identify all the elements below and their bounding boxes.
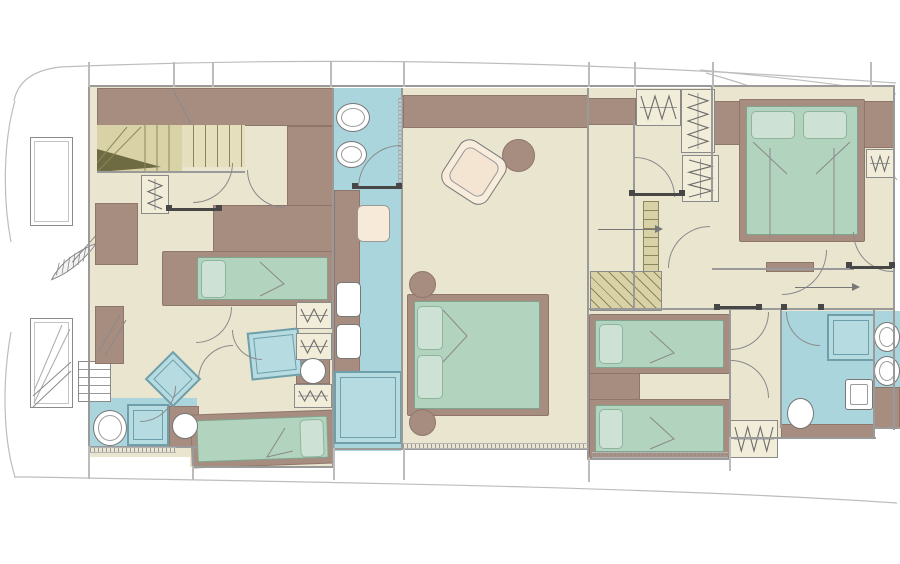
door-leaf [633, 193, 683, 196]
hull-bow-upper [5, 101, 15, 242]
forward-lower-bed-pillow-1 [299, 419, 324, 458]
master-bath-seat [357, 205, 390, 242]
wall-vertical [88, 85, 90, 448]
aft-staircase [590, 271, 662, 311]
master-bidet [336, 324, 361, 359]
starboard-bath-counter [873, 387, 900, 429]
wall-vertical [192, 446, 194, 468]
stair-direction-arrow [598, 225, 666, 234]
hull-frame-stub-top [212, 62, 214, 87]
master-bed [407, 294, 549, 416]
twin-bed-upper [589, 314, 730, 374]
aft-vanity-sink-basin [850, 384, 868, 405]
wall-vertical [873, 427, 875, 439]
aft-vanity-sink [845, 379, 873, 410]
forward-sink [93, 410, 127, 446]
twin-wardrobe [730, 420, 778, 458]
door-post [846, 262, 852, 268]
yacht-lower-deck-floor-plan [0, 0, 900, 564]
hull-frame-stub-top [870, 62, 872, 87]
stair-direction-arrow-head [655, 225, 663, 233]
forward-stairs-winder [97, 125, 182, 172]
hull-frame-stub-bottom [588, 458, 590, 482]
starboard-sink-2 [874, 356, 900, 386]
master-side-table-bottom [409, 409, 436, 436]
wall-horizontal [874, 427, 900, 429]
door-leaf [850, 266, 892, 269]
wall-vertical [711, 85, 713, 202]
master-bed-pillow-1 [417, 306, 443, 350]
master-shower-tray [340, 377, 396, 438]
forward-cabinet-band [97, 88, 333, 126]
wall-vertical [873, 310, 875, 429]
forward-toilet [172, 413, 198, 439]
starboard-sink-1 [874, 322, 900, 352]
hull-frame-stub-top [403, 62, 405, 87]
hull-frame-stub-top [634, 62, 636, 87]
door-post [714, 304, 720, 310]
bow-locker-1 [30, 137, 73, 226]
door-post [396, 183, 402, 189]
door-post [756, 304, 762, 310]
vip-headboard-left [712, 101, 741, 145]
wall-vertical [780, 310, 782, 428]
door-post [352, 183, 358, 189]
door-post [166, 205, 172, 211]
forward-lower-bed [190, 410, 335, 469]
forward-mid-cabinet [213, 205, 333, 253]
hull-frame-stub-bottom [729, 437, 731, 471]
bow-ladder [78, 361, 111, 402]
door-leaf [170, 208, 218, 211]
hull-bow-lower [5, 332, 15, 477]
twin-bed-upper-pillow-1 [599, 324, 623, 364]
wall-vertical [633, 120, 635, 310]
door-post [629, 190, 635, 196]
forward-stairs-treads [182, 125, 245, 167]
forward-single-bed-pillow-1 [201, 260, 226, 298]
mid-toilet [300, 358, 326, 384]
master-cabinet-band [403, 95, 588, 128]
mirror-panel [95, 306, 124, 364]
aft-toilet [787, 398, 814, 429]
corridor-direction-arrow [795, 283, 863, 292]
hull-frame-stub-top [588, 62, 590, 87]
lobby-closet-1 [636, 89, 681, 126]
master-bed-pillow-2 [417, 355, 443, 399]
wall-horizontal [729, 437, 876, 439]
master-shower [334, 371, 402, 444]
lobby-cabinet [588, 98, 636, 125]
hull-frame-stub-bottom [333, 448, 335, 480]
bow-locker-1-inner [34, 141, 69, 222]
master-sink-1-basin [341, 108, 365, 127]
wall-vertical [587, 88, 589, 460]
window-strip [592, 452, 728, 458]
twin-bed-lower [589, 399, 730, 458]
door-post [679, 190, 685, 196]
mid-wardrobe-2 [296, 333, 332, 360]
door-leaf [718, 306, 760, 309]
corridor-direction-arrow-head [852, 283, 860, 291]
bow-locker-2 [30, 318, 73, 408]
window-strip [90, 447, 176, 453]
twin-nightstand [589, 372, 640, 401]
forward-cabinet-left [95, 203, 138, 265]
forward-sink-basin [98, 415, 122, 441]
mid-wardrobe-1 [296, 302, 332, 329]
lobby-closet-3 [682, 155, 719, 202]
master-side-table-top [409, 271, 436, 298]
corridor-direction-arrow-line [795, 287, 853, 288]
hull-frame-stub-top [330, 62, 332, 87]
hull-frame-stub-top [712, 62, 714, 87]
door-post [216, 205, 222, 211]
master-wc [336, 282, 361, 317]
aft-shower [827, 314, 875, 361]
door-post [818, 304, 824, 310]
mid-wardrobe-3 [294, 384, 332, 408]
hull-sheer-bottom [14, 477, 897, 503]
window-strip [403, 443, 588, 449]
wall-horizontal [88, 85, 895, 87]
hull-frame-stub-bottom [403, 448, 405, 480]
lobby-closet-2 [681, 89, 715, 153]
vip-bed-pillow-2 [803, 111, 847, 139]
wall-horizontal [588, 458, 731, 460]
aft-stairs-strip [643, 201, 659, 272]
master-sink-1 [336, 103, 370, 132]
vip-bed-pillow-1 [751, 111, 795, 139]
master-sink-2-basin [341, 146, 362, 163]
vip-closet [866, 149, 894, 178]
door-post [781, 304, 787, 310]
wall-vertical [332, 88, 334, 448]
hull-frame-stub-bottom [192, 466, 194, 480]
hull-frame-stub-top [173, 62, 175, 87]
door-post [889, 262, 895, 268]
wall-horizontal [192, 466, 334, 468]
stair-direction-arrow-line [598, 229, 656, 230]
wall-vertical [893, 85, 895, 430]
forward-single-bed [162, 251, 333, 306]
twin-bed-lower-pillow-1 [599, 409, 623, 449]
master-sink-2 [336, 141, 367, 168]
hull-frame-stub-top [88, 62, 90, 87]
forward-wardrobe [141, 175, 169, 214]
vip-bed [739, 99, 865, 242]
master-armchair-cushion [446, 144, 501, 199]
vip-headboard-right [860, 101, 894, 148]
aft-shower-tray [833, 320, 869, 355]
